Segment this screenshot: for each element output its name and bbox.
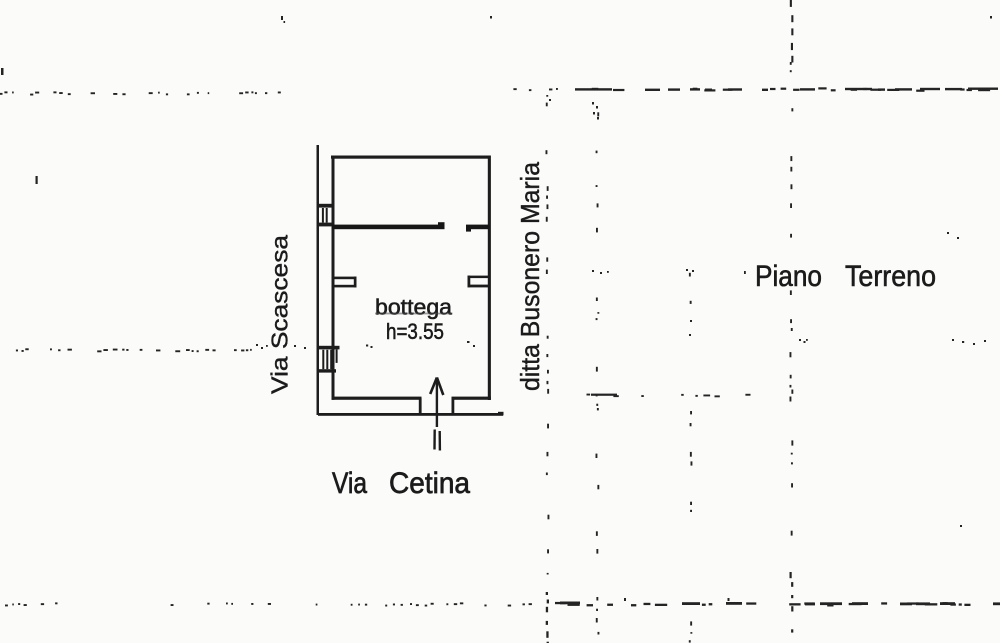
svg-text:Cetina: Cetina (389, 467, 470, 500)
svg-text:bottega: bottega (375, 295, 453, 320)
svg-text:ditta Busonero Maria: ditta Busonero Maria (515, 161, 545, 391)
svg-text:Piano: Piano (755, 260, 822, 293)
svg-text:Via: Via (332, 467, 367, 500)
svg-text:Via Scascesa: Via Scascesa (267, 235, 293, 394)
svg-text:h=3.55: h=3.55 (386, 319, 444, 344)
svg-text:Terreno: Terreno (845, 260, 936, 293)
